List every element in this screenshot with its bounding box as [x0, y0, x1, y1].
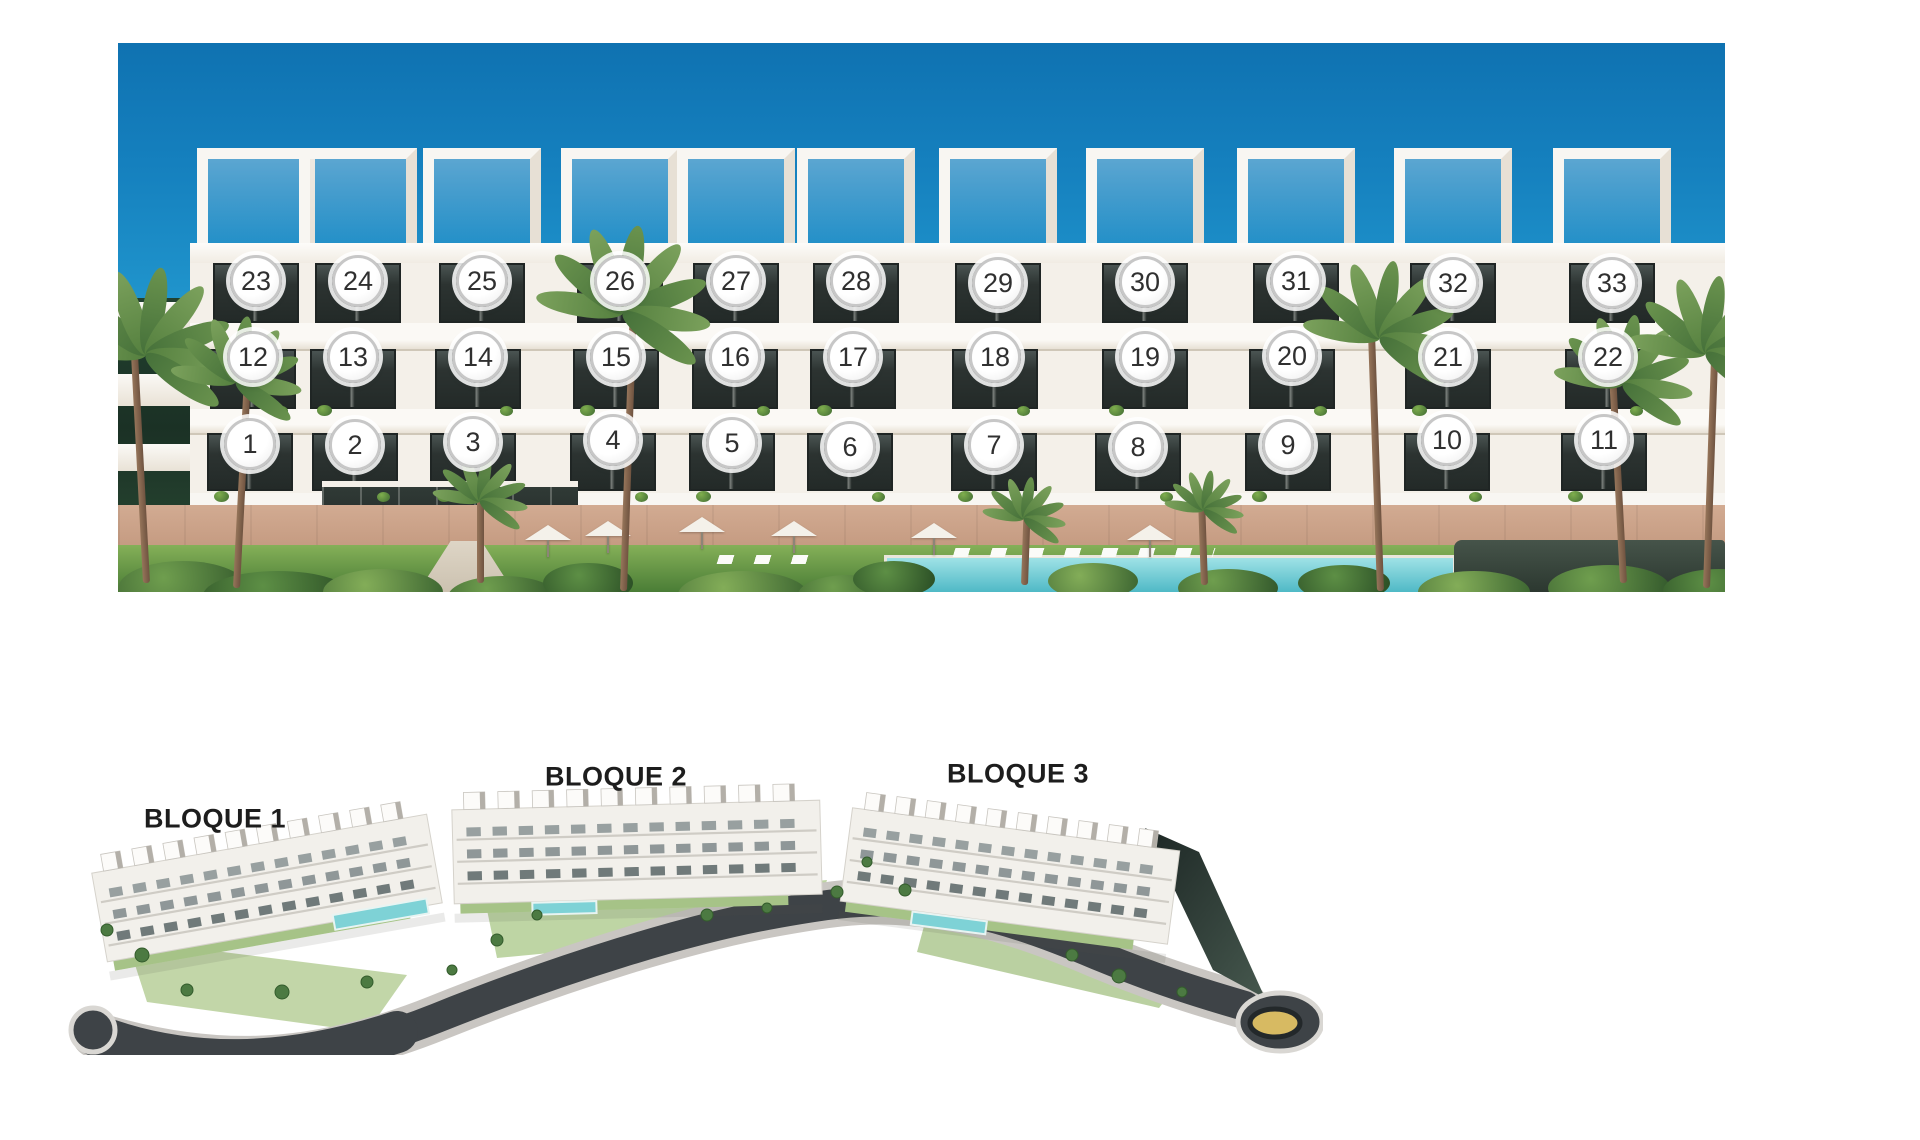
- unit-marker-24[interactable]: 24: [332, 255, 384, 307]
- balcony-plant: [500, 406, 513, 416]
- tree-icon: [1112, 969, 1126, 983]
- unit-marker-27[interactable]: 27: [710, 255, 762, 307]
- balcony-plant: [817, 405, 832, 416]
- roundabout-center: [1250, 1009, 1300, 1037]
- tree-icon: [181, 984, 193, 996]
- balcony-plant: [1314, 406, 1327, 416]
- balcony-plant: [1252, 491, 1267, 502]
- unit-marker-33[interactable]: 33: [1586, 257, 1638, 309]
- unit-marker-25[interactable]: 25: [456, 255, 508, 307]
- block-label-1: BLOQUE 1: [144, 804, 286, 835]
- block-label-2: BLOQUE 2: [545, 762, 687, 793]
- tree-icon: [1177, 987, 1187, 997]
- unit-marker-23[interactable]: 23: [230, 255, 282, 307]
- building-elevation-photo: [118, 43, 1725, 592]
- roof-pergola: [197, 148, 315, 243]
- page: 1234567891011121314151617181920212223242…: [0, 0, 1920, 1140]
- roof-parapet: [190, 243, 1725, 263]
- roof-pergola: [1394, 148, 1512, 243]
- parasol-icon: [525, 525, 571, 540]
- unit-marker-4[interactable]: 4: [587, 414, 639, 466]
- sun-loungers: [953, 548, 1216, 557]
- unit-marker-7[interactable]: 7: [968, 419, 1020, 471]
- floor-slab: [190, 323, 1725, 351]
- tree-icon: [862, 857, 872, 867]
- tree-icon: [491, 934, 503, 946]
- unit-marker-1[interactable]: 1: [224, 418, 276, 470]
- tree-icon: [101, 924, 113, 936]
- roof-pergola: [797, 148, 915, 243]
- unit-marker-28[interactable]: 28: [830, 255, 882, 307]
- tree-icon: [1066, 949, 1078, 961]
- unit-marker-16[interactable]: 16: [709, 331, 761, 383]
- shrub: [1048, 563, 1138, 592]
- tree-icon: [447, 965, 457, 975]
- parasol-icon: [679, 517, 725, 532]
- tree-icon: [275, 985, 289, 999]
- parasol-icon: [771, 521, 817, 536]
- balcony-plant: [958, 491, 973, 502]
- unit-marker-10[interactable]: 10: [1421, 414, 1473, 466]
- roof-pergola: [299, 148, 417, 243]
- road-end: [71, 1008, 115, 1052]
- balcony-plant: [872, 492, 885, 502]
- balcony-plant: [377, 492, 390, 502]
- balcony-plant: [1568, 491, 1583, 502]
- unit-marker-13[interactable]: 13: [327, 331, 379, 383]
- roof-pergola: [939, 148, 1057, 243]
- unit-marker-9[interactable]: 9: [1262, 419, 1314, 471]
- balcony-plant: [214, 491, 229, 502]
- unit-marker-21[interactable]: 21: [1422, 331, 1474, 383]
- road-wide-section: [95, 1032, 397, 1055]
- shrub: [853, 561, 935, 592]
- balcony-plant: [1412, 405, 1427, 416]
- roof-pergola: [677, 148, 795, 243]
- unit-marker-6[interactable]: 6: [824, 421, 876, 473]
- unit-marker-31[interactable]: 31: [1270, 255, 1322, 307]
- site-block-3: [838, 791, 1182, 963]
- tree-icon: [135, 948, 149, 962]
- tree-icon: [361, 976, 373, 988]
- site-plan-render: [67, 740, 1323, 1055]
- floor-slab: [190, 409, 1725, 435]
- unit-marker-17[interactable]: 17: [827, 331, 879, 383]
- site-plan: BLOQUE 1BLOQUE 2BLOQUE 3: [67, 740, 1323, 1055]
- roof-pergola: [1237, 148, 1355, 243]
- unit-marker-5[interactable]: 5: [706, 417, 758, 469]
- unit-marker-32[interactable]: 32: [1427, 257, 1479, 309]
- tree-icon: [701, 909, 713, 921]
- unit-marker-12[interactable]: 12: [227, 331, 279, 383]
- tree-icon: [762, 903, 772, 913]
- unit-marker-2[interactable]: 2: [329, 419, 381, 471]
- balcony-plant: [317, 405, 332, 416]
- unit-marker-8[interactable]: 8: [1112, 421, 1164, 473]
- balcony-plant: [1017, 406, 1030, 416]
- block-label-3: BLOQUE 3: [947, 759, 1089, 790]
- parasol-icon: [911, 523, 957, 538]
- balcony-plant: [757, 406, 770, 416]
- roof-pergola: [1086, 148, 1204, 243]
- unit-marker-15[interactable]: 15: [590, 331, 642, 383]
- tree-icon: [831, 886, 843, 898]
- roof-pergola: [561, 148, 679, 243]
- unit-marker-14[interactable]: 14: [452, 331, 504, 383]
- tree-icon: [532, 910, 542, 920]
- unit-marker-26[interactable]: 26: [594, 255, 646, 307]
- balcony-plant: [696, 491, 711, 502]
- unit-marker-20[interactable]: 20: [1266, 330, 1318, 382]
- roof-pergola: [423, 148, 541, 243]
- unit-marker-11[interactable]: 11: [1578, 414, 1630, 466]
- balcony-plant: [635, 492, 648, 502]
- balcony-plant: [580, 405, 595, 416]
- parasol-icon: [1127, 525, 1173, 540]
- site-block-2: [451, 783, 822, 923]
- tree-icon: [899, 884, 911, 896]
- balcony-plant: [1109, 405, 1124, 416]
- balcony-plant: [1469, 492, 1482, 502]
- unit-marker-18[interactable]: 18: [969, 331, 1021, 383]
- unit-marker-19[interactable]: 19: [1119, 331, 1171, 383]
- unit-marker-29[interactable]: 29: [972, 257, 1024, 309]
- unit-marker-30[interactable]: 30: [1119, 256, 1171, 308]
- unit-marker-22[interactable]: 22: [1582, 331, 1634, 383]
- sun-loungers: [717, 555, 815, 564]
- roof-pergola: [1553, 148, 1671, 243]
- unit-marker-3[interactable]: 3: [447, 416, 499, 468]
